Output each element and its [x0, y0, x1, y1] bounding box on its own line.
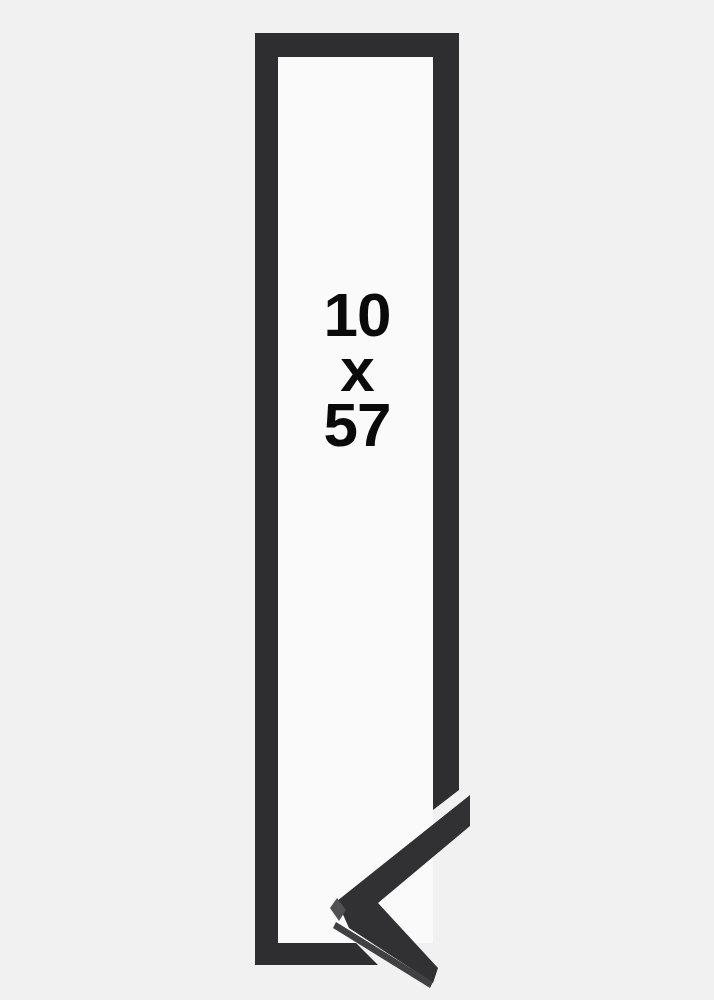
- size-label: 10 x 57: [255, 287, 459, 452]
- size-separator: x: [255, 342, 459, 397]
- frame-product-image: 10 x 57: [0, 0, 714, 1000]
- frame-opening: [278, 57, 433, 943]
- frame-top-bar: [255, 33, 459, 57]
- size-width-value: 10: [255, 287, 459, 342]
- frame-bottom-bar: [255, 943, 378, 965]
- frame-left-bar: [255, 33, 278, 965]
- frame-graphic: [0, 0, 714, 1000]
- size-height-value: 57: [255, 397, 459, 452]
